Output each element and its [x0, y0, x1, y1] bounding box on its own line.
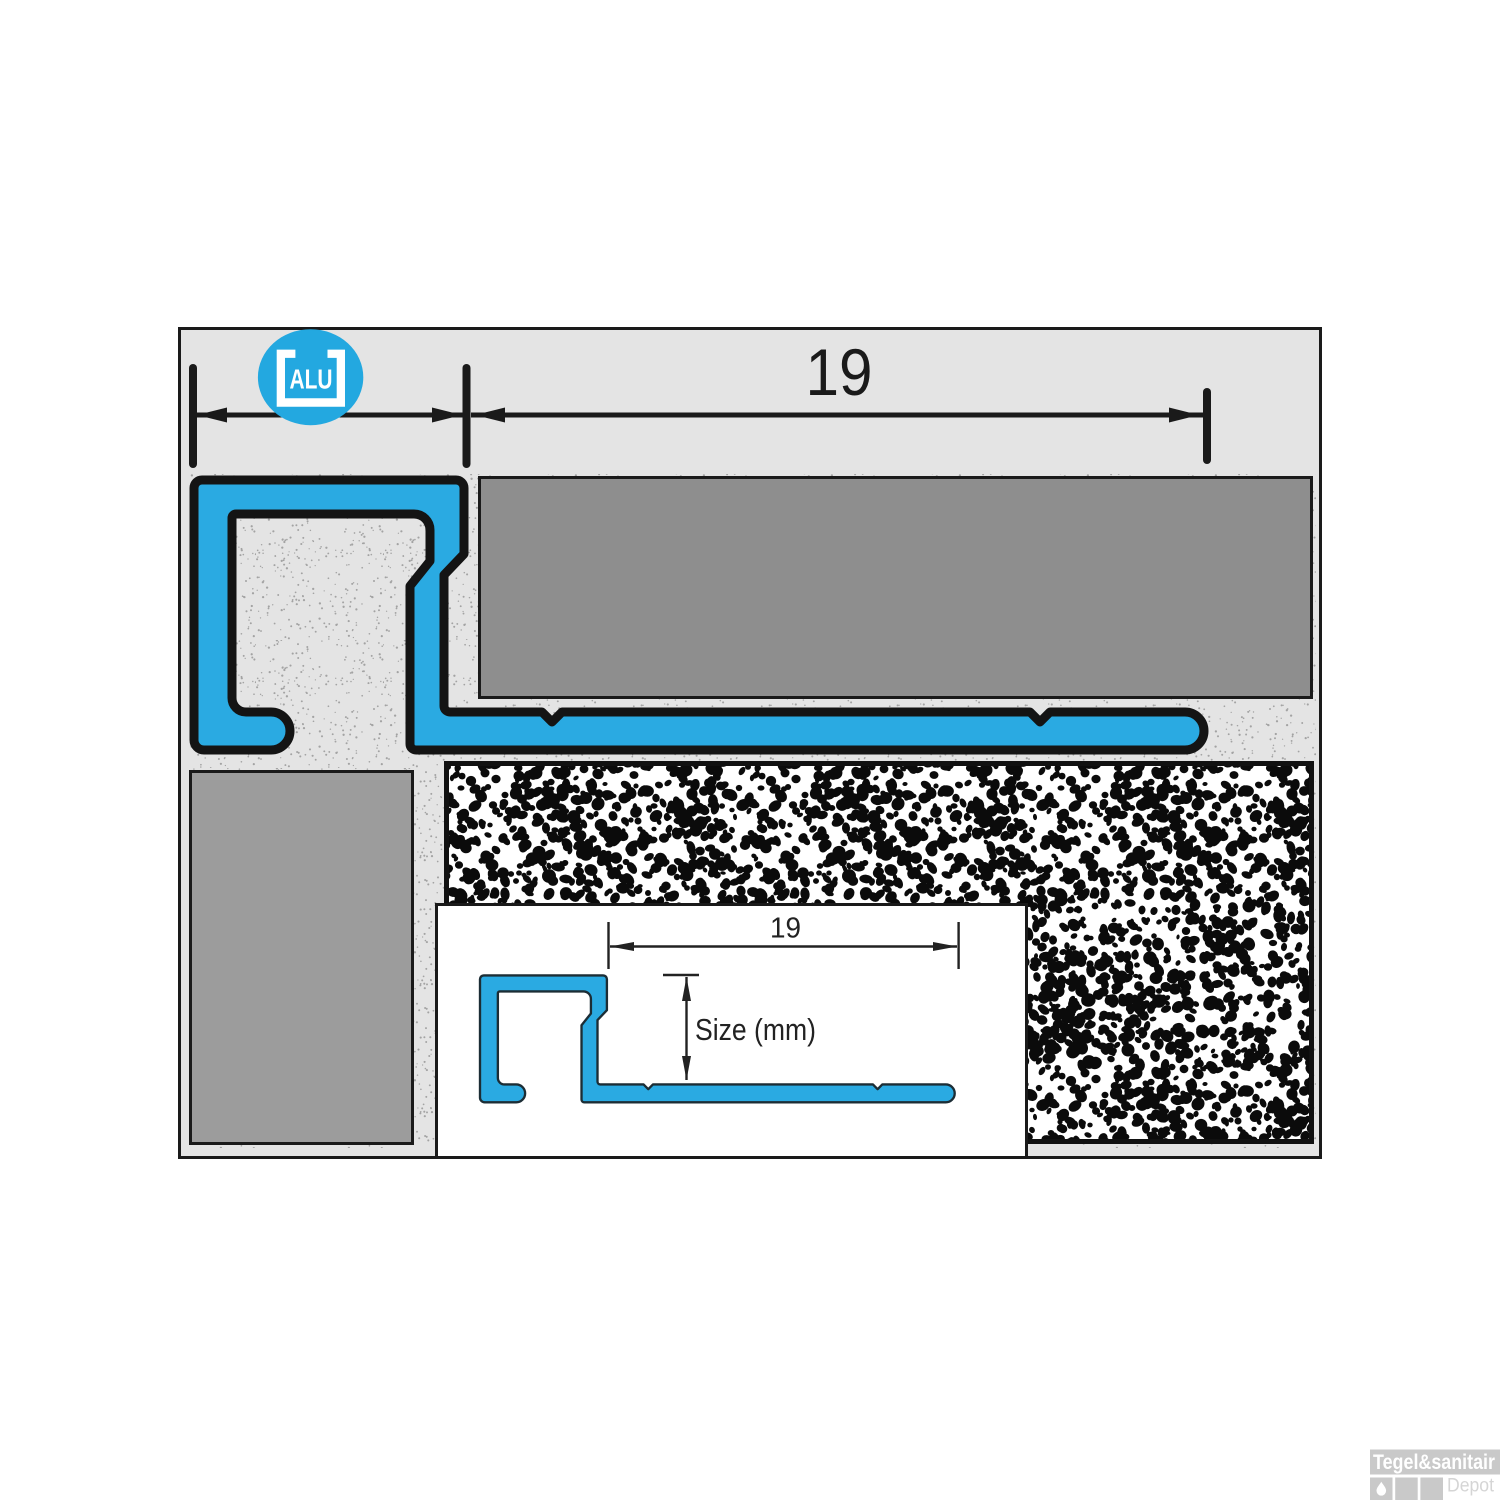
svg-text:Tegel&sanitair: Tegel&sanitair — [1373, 1451, 1495, 1474]
svg-text:Depot: Depot — [1447, 1476, 1495, 1497]
svg-text:Size (mm): Size (mm) — [695, 1012, 816, 1047]
svg-text:19: 19 — [770, 913, 801, 945]
svg-text:19: 19 — [806, 335, 873, 409]
svg-text:ALU: ALU — [290, 363, 333, 394]
